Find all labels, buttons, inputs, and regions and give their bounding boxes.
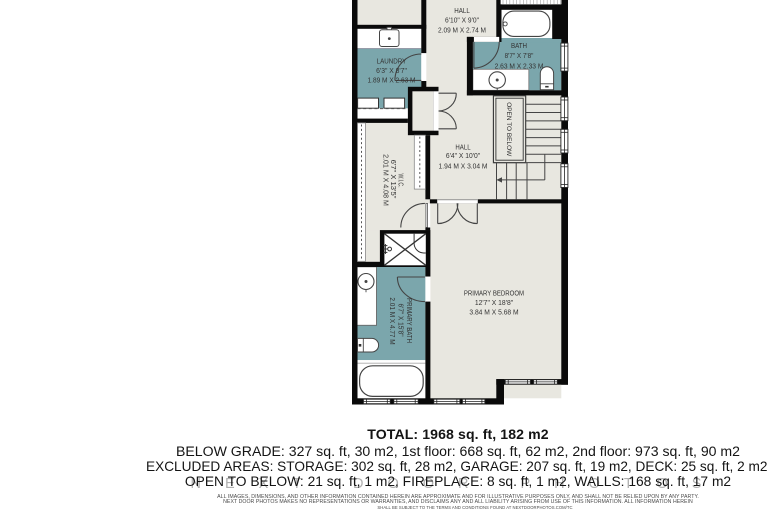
svg-text:2.01 M X 4.77 M: 2.01 M X 4.77 M [388, 297, 397, 344]
svg-text:6'3" X 8'7": 6'3" X 8'7" [376, 66, 407, 75]
svg-text:1.89 M X 2.63 M: 1.89 M X 2.63 M [368, 76, 416, 85]
svg-text:2.63 M X 2.33 M: 2.63 M X 2.33 M [495, 61, 544, 70]
svg-text:3.84 M X 5.68 M: 3.84 M X 5.68 M [469, 308, 518, 317]
svg-text:12'7" X 18'8": 12'7" X 18'8" [475, 298, 514, 307]
svg-text:6'7" X 15'8": 6'7" X 15'8" [397, 304, 406, 337]
svg-text:8'7" X 7'8": 8'7" X 7'8" [505, 51, 534, 60]
svg-text:6'4" X 10'0": 6'4" X 10'0" [446, 151, 481, 160]
svg-text:BATH: BATH [511, 41, 527, 50]
svg-text:2.01 M X 4.08 M: 2.01 M X 4.08 M [382, 154, 391, 206]
svg-text:PRIMARY BEDROOM: PRIMARY BEDROOM [464, 289, 524, 298]
svg-text:1.94 M X 3.04 M: 1.94 M X 3.04 M [439, 162, 488, 171]
svg-text:LAUNDRY: LAUNDRY [377, 57, 407, 66]
svg-text:OPEN TO BELOW: OPEN TO BELOW [505, 102, 512, 157]
svg-text:HALL: HALL [454, 6, 470, 15]
svg-text:6'10" X 9'0": 6'10" X 9'0" [445, 16, 479, 25]
svg-text:2.09 M X 2.74 M: 2.09 M X 2.74 M [438, 25, 486, 34]
